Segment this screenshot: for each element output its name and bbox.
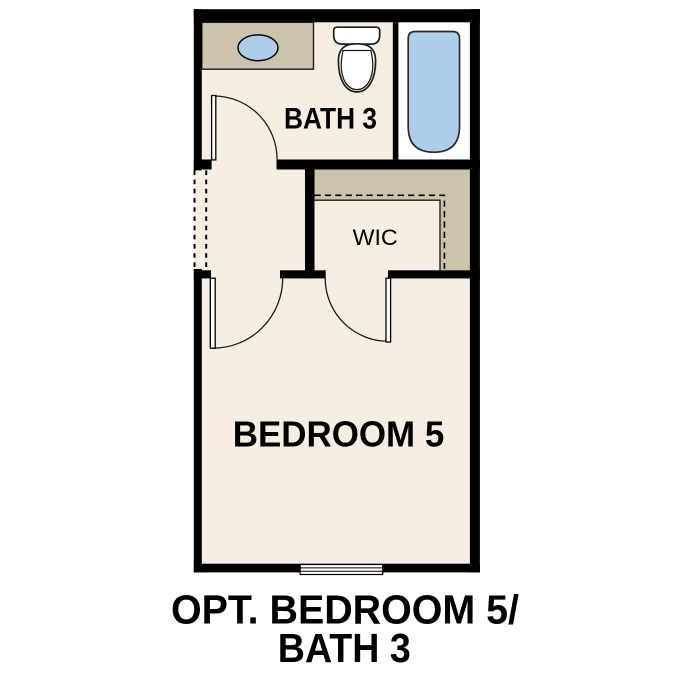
svg-text:BATH 3: BATH 3	[284, 102, 377, 135]
svg-text:BATH 3: BATH 3	[278, 625, 411, 671]
svg-text:BEDROOM 5: BEDROOM 5	[233, 413, 445, 454]
svg-text:WIC: WIC	[353, 225, 398, 250]
